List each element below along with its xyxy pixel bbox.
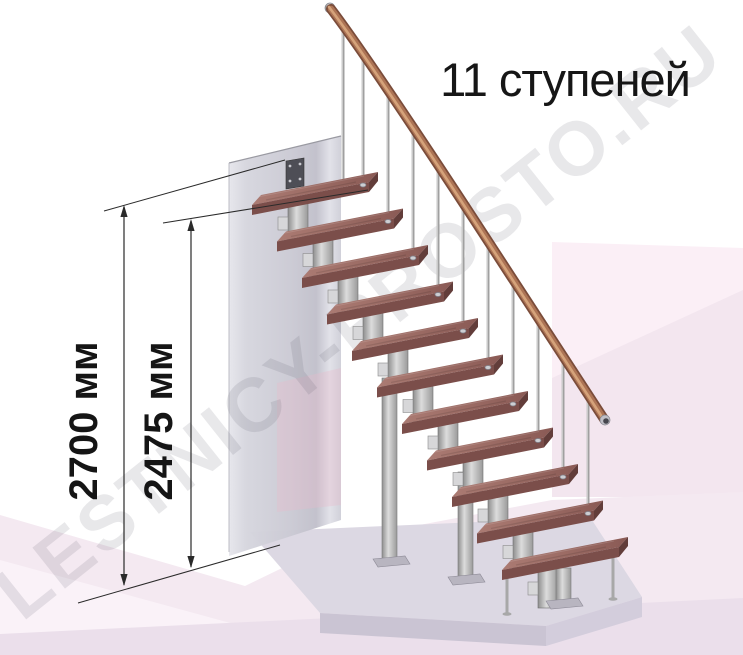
step-count-title: 11 ступеней — [440, 53, 690, 106]
dimension-label-2700: 2700 мм — [62, 341, 106, 500]
diagram-svg: LESTNICY-PROSTO.RU 2700 мм 2475 мм 11 ст… — [0, 0, 743, 655]
dimension-label-2475: 2475 мм — [137, 341, 181, 500]
staircase-diagram: LESTNICY-PROSTO.RU 2700 мм 2475 мм 11 ст… — [0, 0, 743, 655]
